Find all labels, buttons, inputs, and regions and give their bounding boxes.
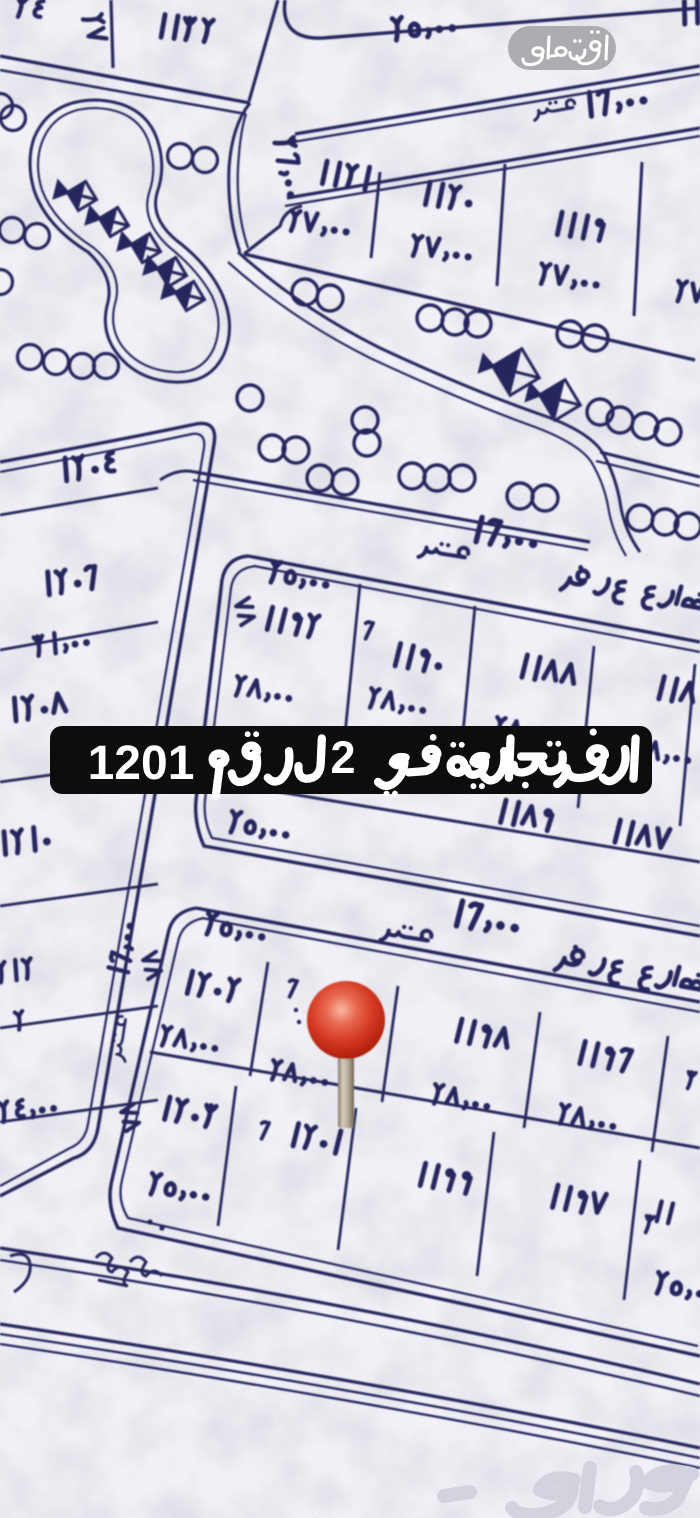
svg-text:2: 2 [330, 732, 355, 783]
svg-text:1201: 1201 [88, 737, 195, 790]
